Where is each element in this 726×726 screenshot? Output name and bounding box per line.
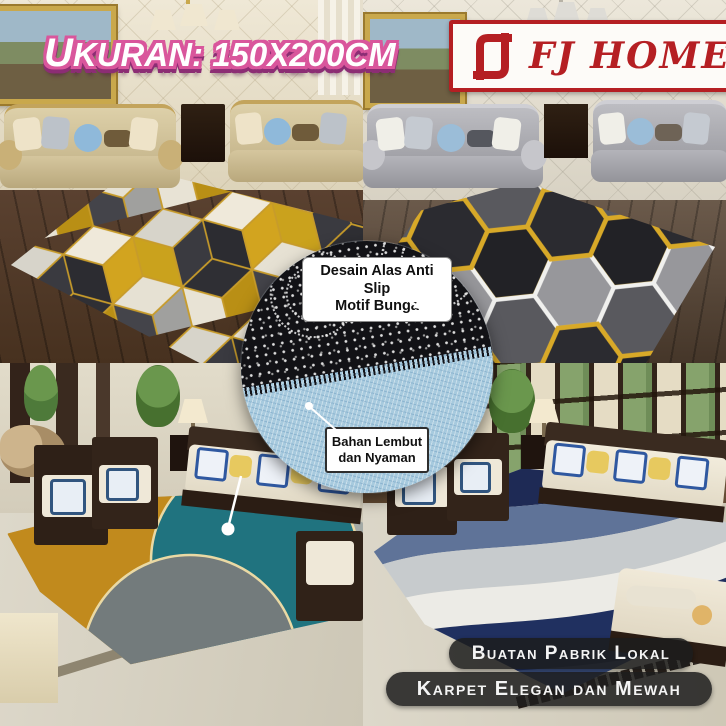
pillow	[12, 116, 43, 151]
pillow-blue-white	[50, 479, 86, 515]
pillow	[234, 112, 263, 146]
pillow	[41, 116, 71, 150]
pillow	[104, 130, 132, 147]
size-title: Ukuran: 150x200cm	[44, 31, 396, 76]
plant	[489, 369, 535, 433]
pillow	[404, 116, 434, 150]
pillow-blue-white	[613, 449, 648, 484]
corner-furniture	[0, 613, 58, 703]
pillow-blue-white	[551, 442, 586, 477]
side-chair-cushion	[306, 541, 354, 585]
pillow	[375, 116, 406, 151]
plant	[136, 365, 180, 427]
brand-logo: FJ HOME	[449, 20, 726, 92]
sofa-right	[228, 88, 363, 200]
pillow-blue-white	[194, 447, 229, 482]
pillow	[491, 116, 522, 151]
sofa-left	[0, 92, 180, 206]
plant	[24, 365, 58, 421]
pillow-blue-white	[106, 468, 139, 501]
pillow	[681, 112, 710, 146]
sofa	[536, 422, 726, 539]
pillow	[128, 116, 159, 151]
pillow-yellow	[586, 450, 610, 474]
soft-material-callout-label: Bahan Lembut dan Nyaman	[325, 427, 429, 473]
pillow	[467, 130, 495, 147]
pillow	[292, 124, 319, 141]
pillow-blue-round	[264, 118, 291, 145]
pillow-blue-round	[437, 124, 465, 152]
side-table	[181, 104, 225, 162]
sofa-right	[591, 88, 726, 200]
side-table	[544, 104, 588, 158]
pillow-yellow	[647, 456, 671, 480]
product-collage-image[interactable]: Ukuran: 150x200cm FJ HOME Desain Alas An…	[0, 0, 726, 726]
badge-elegant-luxury: Karpet Elegan dan Mewah	[386, 672, 712, 706]
fj-monogram-icon	[465, 29, 519, 83]
badge-local-factory: Buatan Pabrik Lokal	[449, 638, 693, 669]
pillow-blue-white	[674, 455, 709, 490]
pillow	[655, 124, 682, 141]
armchair	[92, 437, 158, 529]
brand-name: FJ HOME	[529, 35, 726, 77]
sofa-left	[363, 92, 543, 206]
pillow	[597, 112, 626, 146]
pillow-blue-round	[627, 118, 654, 145]
pillow	[318, 112, 347, 146]
pillow-blue-round	[74, 124, 102, 152]
anti-slip-callout-label: Desain Alas Anti Slip Motif Bunga	[302, 257, 452, 322]
